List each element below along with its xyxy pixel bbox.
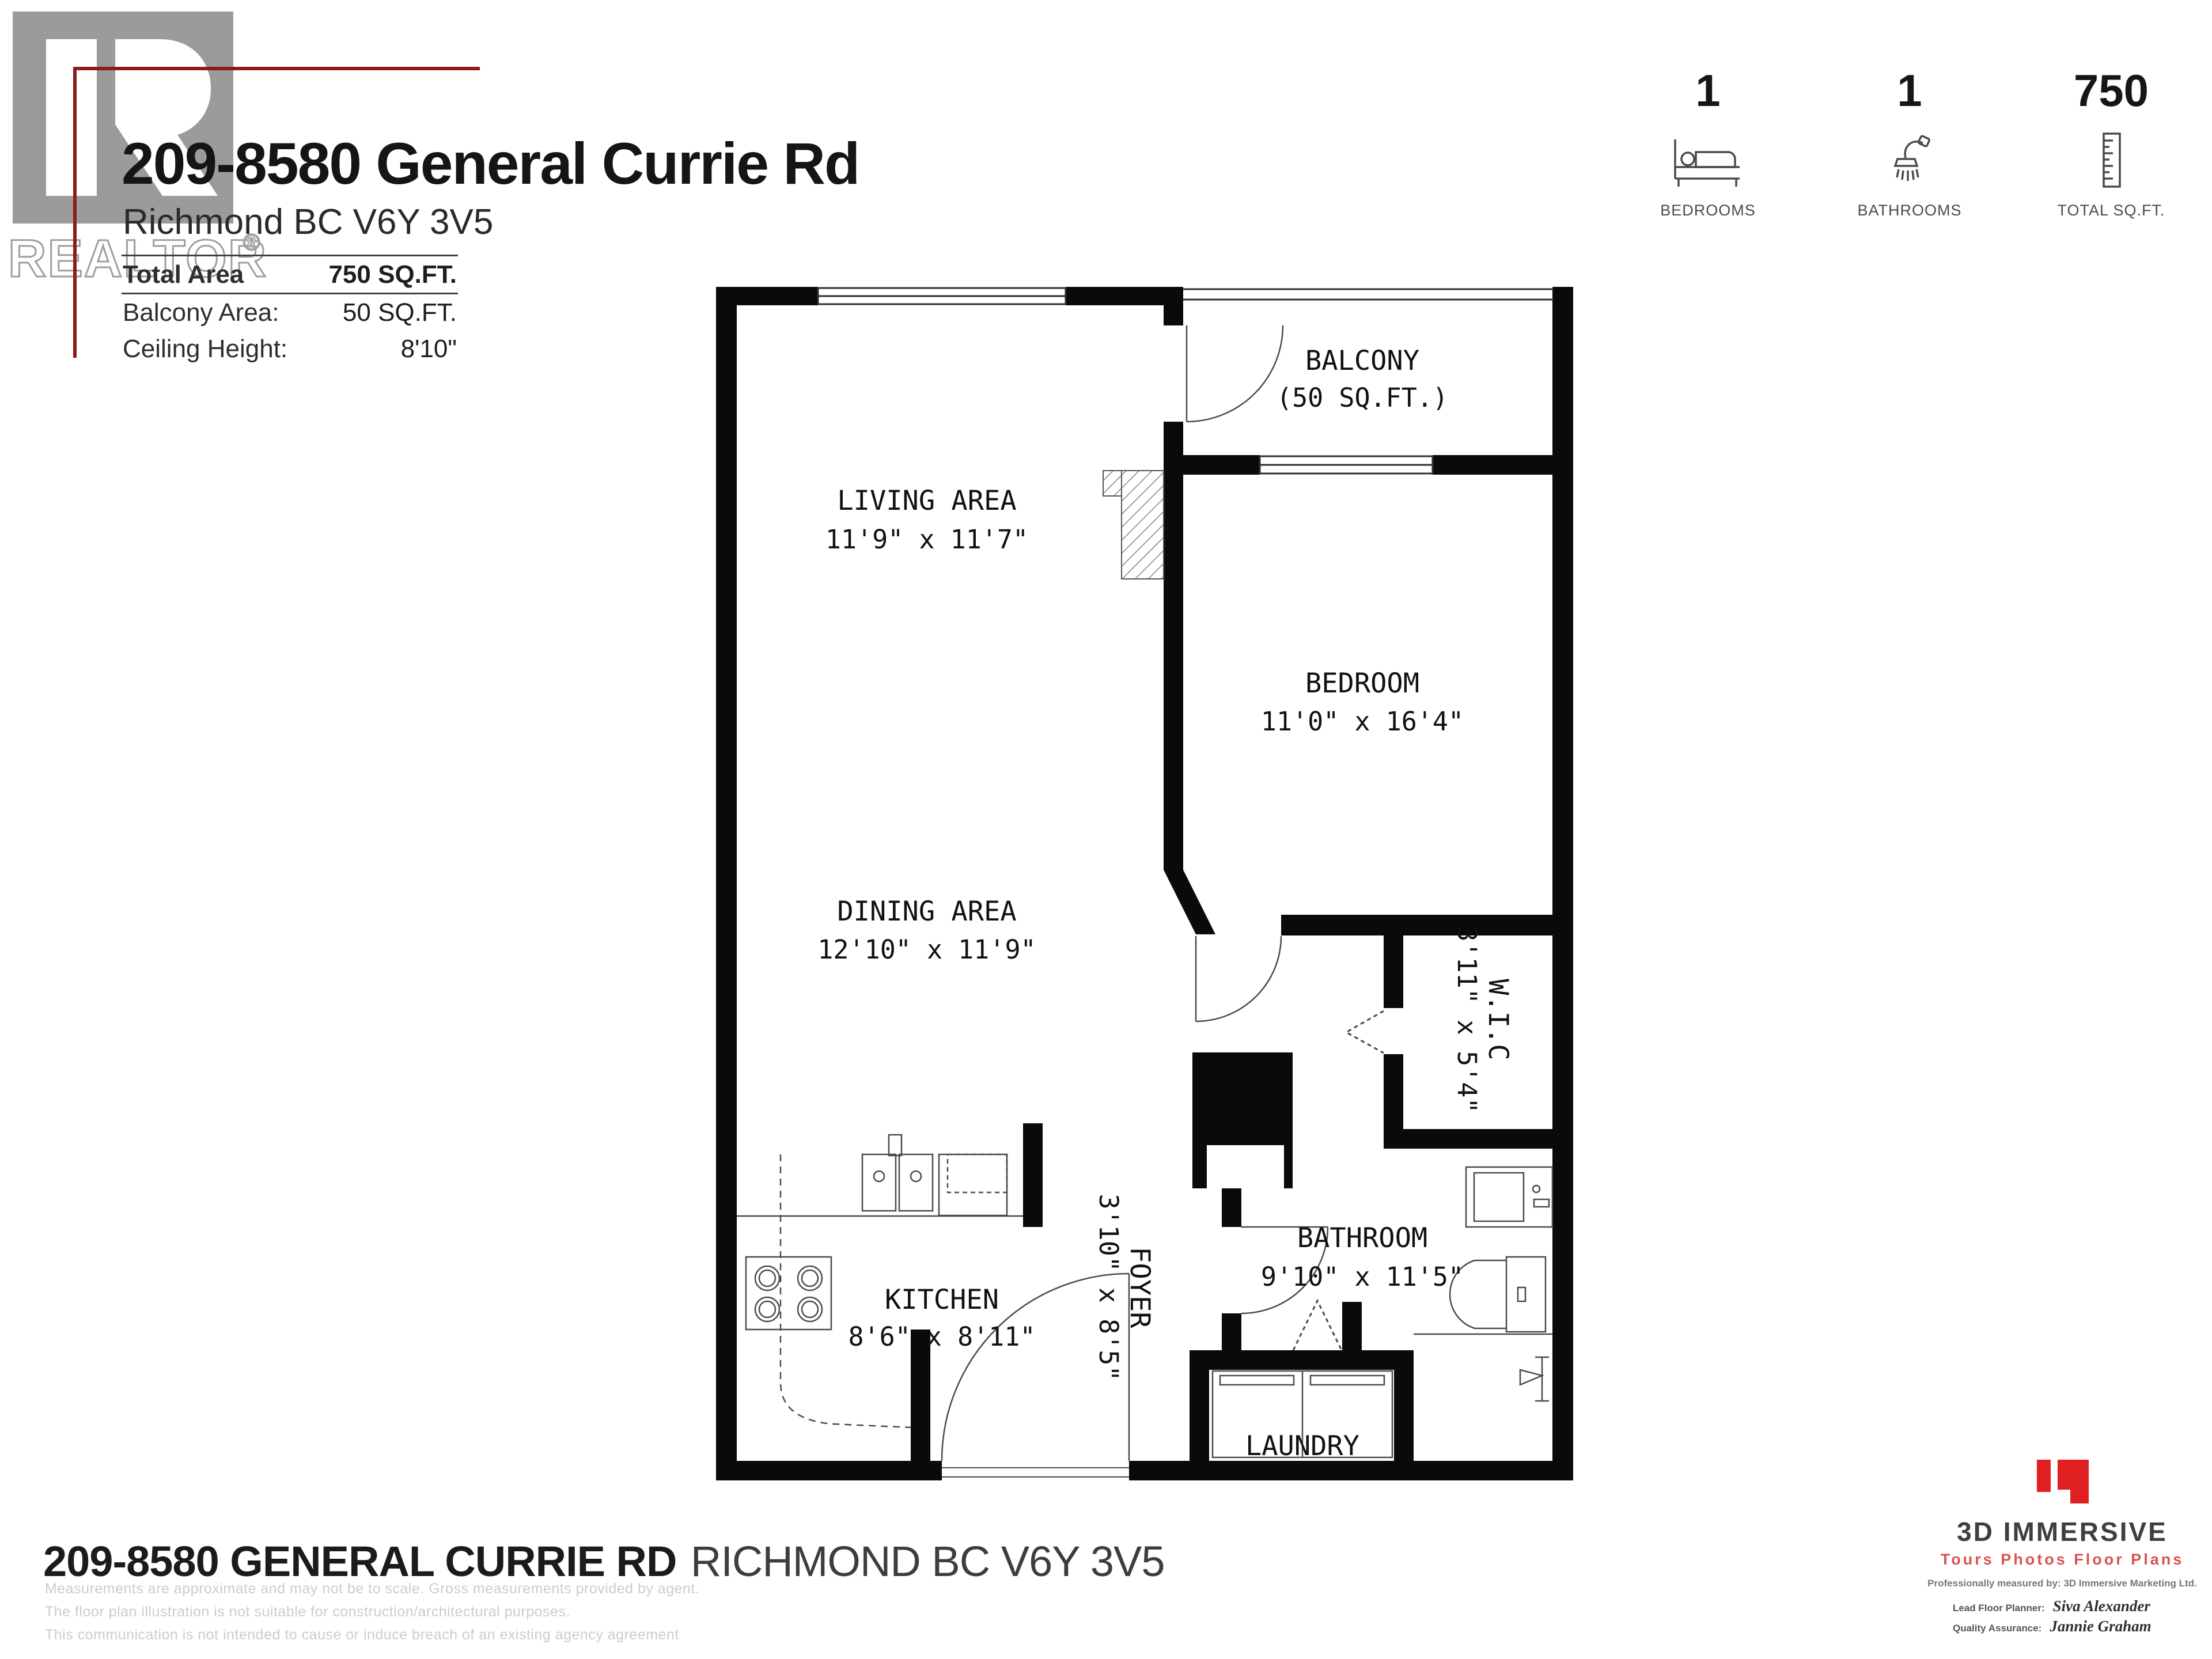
info-value: 50 SQ.FT. — [343, 298, 457, 327]
kitchen-sink — [862, 1154, 896, 1211]
wic-bifold-door — [1346, 1011, 1384, 1053]
bathroom-vanity — [1466, 1167, 1552, 1227]
stat-bathrooms: 1 BATHROOMS — [1820, 68, 1999, 219]
footer-address: 209-8580 GENERAL CURRIE RD RICHMOND BC V… — [43, 1537, 1165, 1586]
lead-planner-row: Lead Floor Planner: Siva Alexander — [1918, 1597, 2206, 1615]
info-value: 8'10" — [401, 335, 457, 363]
kitchen-fixtures — [737, 1135, 1023, 1427]
balcony-door-arc — [1187, 325, 1283, 422]
room-dims-bathroom: 9'10" x 11'5" — [1261, 1262, 1464, 1292]
vendor-name: 3D IMMERSIVE — [1957, 1516, 2168, 1547]
disclaimer-line: Measurements are approximate and may not… — [45, 1581, 699, 1597]
info-row-total-area: Total Area 750 SQ.FT. — [122, 256, 458, 293]
footer-address-main: 209-8580 GENERAL CURRIE RD — [43, 1537, 676, 1585]
shower-icon — [1884, 134, 1935, 189]
ruler-icon — [2098, 134, 2124, 189]
accent-line-horizontal — [73, 67, 480, 70]
info-value: 750 SQ.FT. — [328, 260, 457, 289]
room-dims-dining: 12'10" x 11'9" — [817, 934, 1036, 965]
disclaimer-line: The floor plan illustration is not suita… — [45, 1604, 699, 1620]
summary-stats: 1 BEDROOMS 1 — [1619, 68, 2200, 219]
floorplan-drawing: BALCONY (50 SQ.FT.) LIVING AREA 11'9" x … — [700, 271, 1604, 1509]
room-label-dining: DINING AREA — [837, 896, 1016, 927]
balcony-railing — [1183, 289, 1554, 300]
lead-planner-label: Lead Floor Planner: — [1953, 1603, 2045, 1614]
stat-label: TOTAL SQ.FT. — [2057, 202, 2165, 219]
3d-immersive-logo-icon — [2032, 1460, 2092, 1510]
info-label: Balcony Area: — [123, 298, 279, 327]
quality-assurance-label: Quality Assurance: — [1953, 1623, 2041, 1634]
stat-total-sqft: 750 TOTAL SQ.FT. — [2022, 68, 2200, 219]
vendor-measured-by: Professionally measured by: 3D Immersive… — [1927, 1578, 2197, 1589]
accent-line-vertical — [73, 67, 77, 358]
bedroom-door-arc — [1196, 936, 1281, 1021]
room-dims-wic: 3'11" x 5'4" — [1452, 926, 1482, 1113]
room-dims-living: 11'9" x 11'7" — [825, 524, 1028, 555]
room-label-kitchen: KITCHEN — [885, 1284, 999, 1316]
bathrooms-count: 1 — [1897, 68, 1922, 113]
shower-head — [1520, 1357, 1549, 1401]
area-info-table: Total Area 750 SQ.FT. Balcony Area: 50 S… — [122, 255, 458, 367]
lead-planner-signature: Siva Alexander — [2053, 1597, 2150, 1615]
room-label-foyer: FOYER — [1124, 1247, 1156, 1328]
room-dims-foyer: 3'10" x 8'5" — [1093, 1194, 1124, 1381]
total-sqft-count: 750 — [2074, 68, 2149, 113]
stat-label: BEDROOMS — [1660, 202, 1756, 219]
room-label-wic: W.I.C — [1482, 979, 1514, 1060]
quality-assurance-signature: Jannie Graham — [2050, 1618, 2151, 1635]
wall-chase-hatch — [1103, 471, 1164, 579]
foyer-closet — [1207, 1145, 1284, 1188]
vendor-tagline: Tours Photos Floor Plans — [1941, 1551, 2184, 1569]
room-label-laundry: LAUNDRY — [1245, 1430, 1359, 1462]
room-label-bathroom: BATHROOM — [1297, 1222, 1427, 1254]
windows — [818, 288, 1433, 474]
page-title: 209-8580 General Currie Rd — [122, 130, 859, 198]
info-row-ceiling-height: Ceiling Height: 8'10" — [122, 331, 458, 367]
room-dims-balcony: (50 SQ.FT.) — [1277, 382, 1448, 413]
disclaimer-line: This communication is not intended to ca… — [45, 1627, 699, 1643]
info-label: Ceiling Height: — [123, 335, 287, 363]
disclaimer-text: Measurements are approximate and may not… — [45, 1581, 699, 1650]
info-row-balcony-area: Balcony Area: 50 SQ.FT. — [122, 294, 458, 331]
bed-icon — [1671, 134, 1745, 189]
info-label: Total Area — [123, 260, 244, 289]
room-label-balcony: BALCONY — [1305, 345, 1419, 377]
room-label-living: LIVING AREA — [837, 485, 1016, 517]
bedrooms-count: 1 — [1695, 68, 1720, 113]
room-dims-kitchen: 8'6" x 8'11" — [848, 1321, 1035, 1352]
stat-label: BATHROOMS — [1857, 202, 1961, 219]
room-dims-bedroom: 11'0" x 16'4" — [1261, 706, 1464, 737]
bath-closet-bifold-door — [1293, 1301, 1342, 1350]
page-subtitle: Richmond BC V6Y 3V5 — [123, 202, 493, 243]
stat-bedrooms: 1 BEDROOMS — [1619, 68, 1797, 219]
room-label-bedroom: BEDROOM — [1305, 668, 1419, 699]
floorplan-page: REALTOR ® 209-8580 General Currie Rd Ric… — [0, 0, 2212, 1659]
fridge — [939, 1154, 1007, 1215]
quality-assurance-row: Quality Assurance: Jannie Graham — [1918, 1618, 2206, 1635]
footer-address-city: RICHMOND BC V6Y 3V5 — [691, 1537, 1165, 1585]
bifold-doors — [1293, 1011, 1384, 1350]
vendor-branding: 3D IMMERSIVE Tours Photos Floor Plans Pr… — [1918, 1460, 2206, 1635]
